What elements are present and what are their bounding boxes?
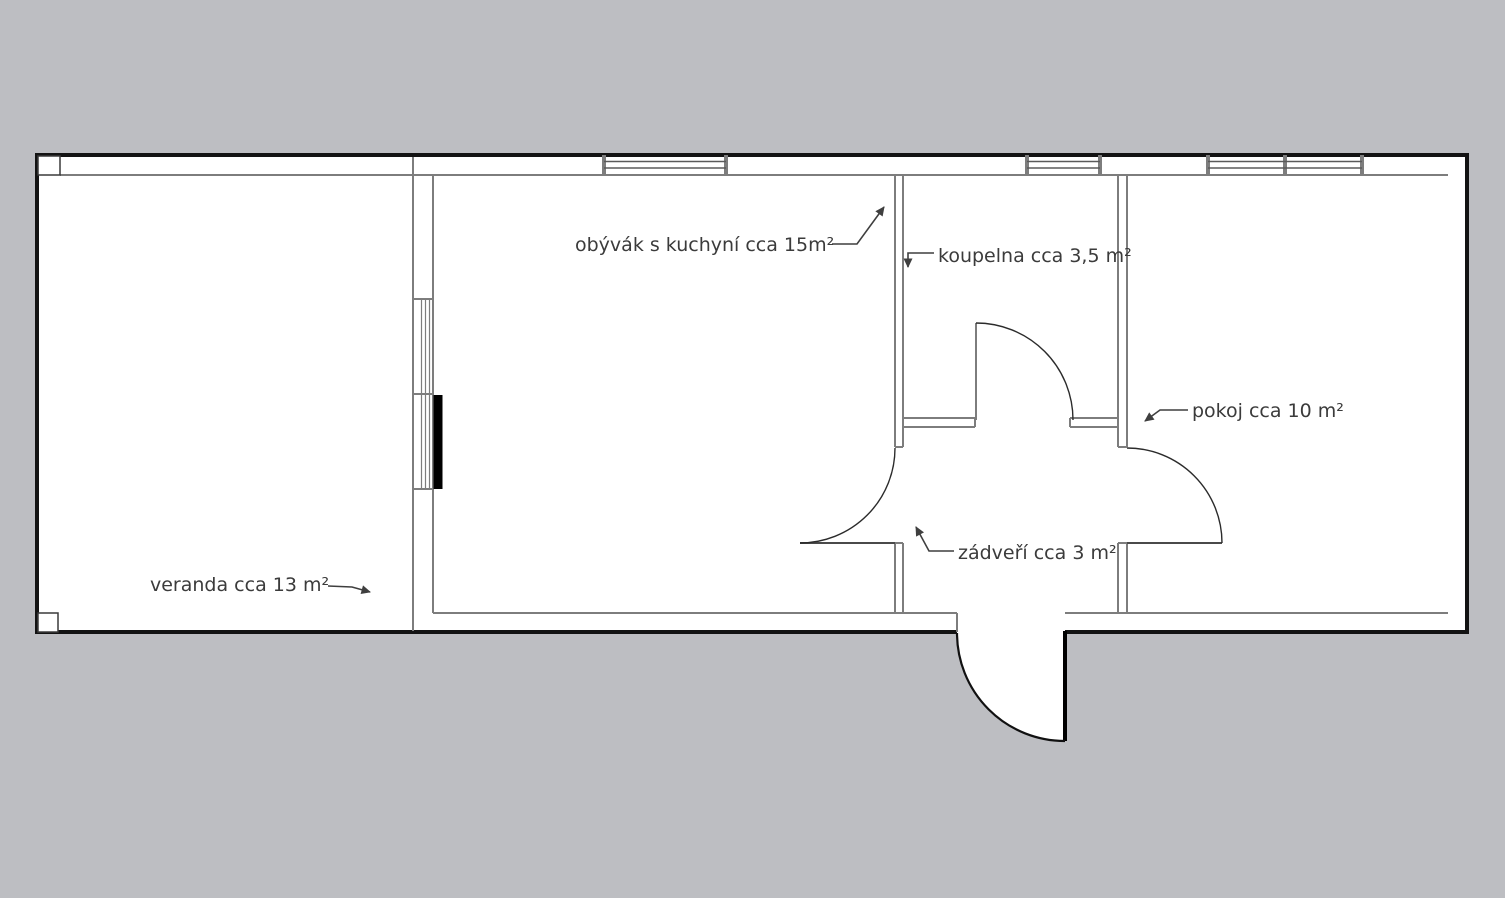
window-post <box>602 155 606 175</box>
veranda-post-bottom-left <box>38 613 58 632</box>
window-post <box>1360 155 1364 175</box>
window-post <box>1283 155 1287 175</box>
floor-area <box>37 153 1469 634</box>
window-post <box>1206 155 1210 175</box>
label-hall: zádveří cca 3 m² <box>958 542 1117 564</box>
label-veranda: veranda cca 13 m² <box>150 574 329 596</box>
window-post <box>724 155 728 175</box>
label-room: pokoj cca 10 m² <box>1192 400 1344 422</box>
window-post <box>1025 155 1029 175</box>
label-living-room: obývák s kuchyní cca 15m² <box>575 234 834 256</box>
veranda-door-leaf <box>434 395 443 489</box>
floor-plan-canvas: obývák s kuchyní cca 15m² koupelna cca 3… <box>0 0 1505 898</box>
floor-plan-drawing <box>0 0 1505 898</box>
window-post <box>1098 155 1102 175</box>
label-bathroom: koupelna cca 3,5 m² <box>938 245 1132 267</box>
veranda-post-top-left <box>38 156 60 175</box>
